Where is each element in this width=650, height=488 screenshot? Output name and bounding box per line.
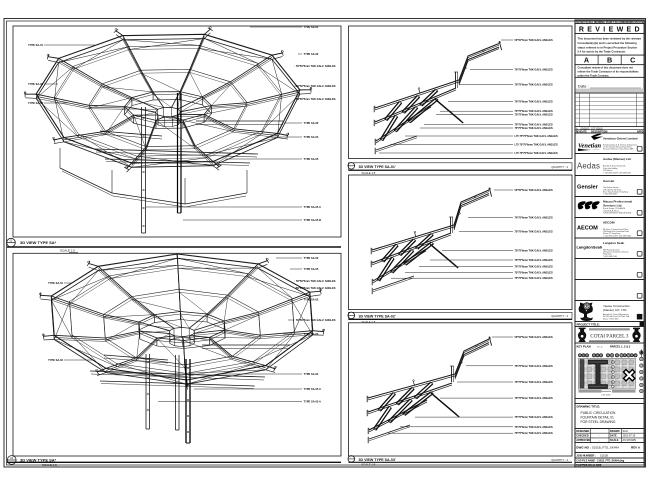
- svg-text:status referred to in Project: status referred to in Project Procedure …: [578, 45, 638, 49]
- svg-text:AS SHOWN: AS SHOWN: [623, 439, 637, 442]
- svg-text:QUANTITY : 4: QUANTITY : 4: [551, 165, 568, 169]
- svg-text:TYPE SA-02: TYPE SA-02: [304, 52, 319, 56]
- svg-text:TYPE SA-01: TYPE SA-01: [28, 43, 43, 47]
- svg-text:75*75*6mm THK GALV. ANGLES: 75*75*6mm THK GALV. ANGLES: [515, 84, 553, 87]
- svg-text:C: C: [630, 56, 635, 65]
- svg-text:SAO: SAO: [623, 430, 628, 433]
- svg-text:50*50*5mm THK GALV. ANGLES: 50*50*5mm THK GALV. ANGLES: [515, 189, 553, 192]
- svg-text:Aedas (Macau) Ltd.: Aedas (Macau) Ltd.: [603, 157, 632, 161]
- svg-text:TYPE SA-02: TYPE SA-02: [28, 82, 43, 86]
- svg-text:SCALE 1:5: SCALE 1:5: [60, 249, 75, 253]
- svg-text:TYPE SA-05 A: TYPE SA-05 A: [304, 205, 321, 209]
- svg-text:DRAWING TITLE:: DRAWING TITLE:: [577, 405, 601, 409]
- svg-text:TYPE SA-04: TYPE SA-04: [48, 358, 63, 362]
- svg-text:75*75*6mm THK GALV. ANGLES: 75*75*6mm THK GALV. ANGLES: [515, 432, 553, 435]
- svg-text:Aedas: Aedas: [577, 162, 600, 171]
- svg-text:75*75*6mm THK GALV. ANGLES: 75*75*6mm THK GALV. ANGLES: [515, 265, 553, 268]
- svg-text:TYPE SA-05: TYPE SA-05: [304, 267, 319, 271]
- svg-text:3D VIEW TYPE SA-02': 3D VIEW TYPE SA-02': [359, 314, 396, 318]
- svg-text:50*50*5mm THK GALV. ANGLES: 50*50*5mm THK GALV. ANGLES: [515, 336, 553, 339]
- svg-text:TYPE SA-04: TYPE SA-04: [304, 135, 319, 139]
- svg-text:SCALE 1:5: SCALE 1:5: [42, 463, 57, 467]
- svg-text:50*50*5mm THK GALV. ANGLES: 50*50*5mm THK GALV. ANGLES: [515, 39, 553, 42]
- svg-text:L75 75*75*6mm THK GALV. ANGLES: L75 75*75*6mm THK GALV. ANGLES: [515, 144, 558, 147]
- svg-text:JOB NUMBER :: JOB NUMBER :: [576, 454, 596, 458]
- svg-text:KEY PLAN: KEY PLAN: [577, 345, 591, 349]
- svg-text:DRAWN: DRAWN: [610, 430, 620, 433]
- svg-text:T +853 2833 1033 F +853 2833: T +853 2833 1033 F +853 2833 1000: [603, 172, 631, 174]
- svg-text:TYPE SA-02: TYPE SA-02: [304, 121, 319, 125]
- svg-text:TYPE SA-05 A: TYPE SA-05 A: [304, 400, 321, 404]
- svg-text:QUANTITY : 4: QUANTITY : 4: [551, 314, 568, 318]
- svg-text:75*75*6mm THK GALV. ANGLES: 75*75*6mm THK GALV. ANGLES: [515, 114, 553, 117]
- svg-text:Langdon Seah: Langdon Seah: [603, 241, 624, 245]
- svg-text:T (852) 2830 1500: T (852) 2830 1500: [603, 256, 617, 258]
- svg-text:TYPE SA-03: TYPE SA-03: [304, 332, 319, 336]
- svg-text:PUBLIC CIRCULATION: PUBLIC CIRCULATION: [581, 411, 617, 415]
- svg-text:75*75*6mm THK GALV. ANGLES: 75*75*6mm THK GALV. ANGLES: [515, 416, 553, 419]
- svg-text:TYPE SA-02: TYPE SA-02: [28, 101, 43, 105]
- svg-text:5151B: 5151B: [600, 454, 608, 458]
- svg-text:T +852 2893 1551 F +852 2891: T +852 2893 1551 F +852 2891 7834: [603, 235, 631, 237]
- svg-text:B: B: [607, 56, 612, 65]
- svg-text:Gensler: Gensler: [577, 185, 599, 191]
- svg-text:Consultant(s)(s) and is accord: Consultant(s)(s) and is accorded the fol…: [578, 41, 637, 45]
- svg-text:2015-07-15: 2015-07-15: [623, 435, 636, 438]
- svg-text:TYPE SA-02: TYPE SA-02: [304, 256, 319, 260]
- svg-text:75*75*6mm THK GALV. ANGLES: 75*75*6mm THK GALV. ANGLES: [515, 100, 553, 103]
- svg-text:APPROVED: APPROVED: [576, 439, 590, 442]
- svg-text:Consultant review of this docu: Consultant review of this document does …: [578, 66, 634, 70]
- svg-text:This document has been reviewe: This document has been reviewed by the r…: [578, 37, 642, 41]
- svg-text:3D VIEW TYPE SA*: 3D VIEW TYPE SA*: [20, 457, 57, 462]
- svg-text:FOUNTAIN DETAIL 01: FOUNTAIN DETAIL 01: [581, 415, 614, 419]
- svg-text:50*50*5mm THK GALV. ANGLES: 50*50*5mm THK GALV. ANGLES: [296, 64, 336, 68]
- svg-text:R E V I E W E D: R E V I E W E D: [579, 26, 640, 33]
- svg-text:L75 75*75*6mm THK GALV. ANGLES: L75 75*75*6mm THK GALV. ANGLES: [515, 152, 558, 155]
- svg-text:Services Ltd.: Services Ltd.: [603, 204, 622, 208]
- svg-text:DWG NO :: DWG NO :: [576, 446, 591, 450]
- svg-text:CHECKED: CHECKED: [576, 435, 589, 438]
- svg-text:75*75*6mm THK GALV. ANGLES: 75*75*6mm THK GALV. ANGLES: [515, 259, 553, 262]
- svg-text:CAD FILE NAME : 5151B_FTD_SK49: CAD FILE NAME : 5151B_FTD_SK494.dwg: [576, 460, 624, 463]
- svg-text:Venetian Orient Limited: Venetian Orient Limited: [603, 137, 638, 141]
- svg-text:3D VIEW TYPE SA-01': 3D VIEW TYPE SA-01': [359, 165, 396, 169]
- svg-text:TYPE SA-02: TYPE SA-02: [304, 298, 319, 302]
- svg-text:75*75*6mm THK GALV. ANGLES: 75*75*6mm THK GALV. ANGLES: [515, 249, 553, 252]
- svg-text:5151B_FTD_SK494: 5151B_FTD_SK494: [592, 446, 619, 450]
- svg-text:(Macau) CO. LTD.: (Macau) CO. LTD.: [603, 308, 627, 312]
- svg-text:75*75*6mm THK GALV. ANGLES: 75*75*6mm THK GALV. ANGLES: [515, 68, 553, 71]
- svg-text:L75 75*75*6mm THK GALV. ANGLES: L75 75*75*6mm THK GALV. ANGLES: [515, 135, 558, 138]
- svg-text:TYPE SA-05: TYPE SA-05: [304, 157, 319, 161]
- svg-text:TYPE SA-01: TYPE SA-01: [304, 25, 319, 29]
- svg-text:REV A: REV A: [631, 446, 641, 450]
- svg-text:50*50*5mm THK GALV. ANGLES: 50*50*5mm THK GALV. ANGLES: [296, 97, 336, 101]
- svg-text:3D VIEW TYPE SA-03': 3D VIEW TYPE SA-03': [359, 458, 396, 462]
- svg-text:75*75*6mm THK GALV. ANGLES: 75*75*6mm THK GALV. ANGLES: [515, 277, 553, 280]
- svg-text:AECOM: AECOM: [577, 226, 598, 232]
- svg-text:DESIGNED: DESIGNED: [576, 430, 589, 433]
- svg-text:TYPE SA-04: TYPE SA-04: [304, 372, 319, 376]
- svg-text:SCALE: SCALE: [610, 439, 619, 442]
- svg-text:under the Trade Contract.: under the Trade Contract.: [578, 74, 610, 78]
- svg-text:50*50*5mm THK GALV. ANGLES: 50*50*5mm THK GALV. ANGLES: [296, 279, 336, 283]
- svg-text:AECOM: AECOM: [603, 221, 615, 225]
- svg-text:TYPE SA-01: TYPE SA-01: [48, 281, 63, 285]
- svg-text:LangdonSeah: LangdonSeah: [577, 245, 603, 250]
- svg-text:Gensler: Gensler: [603, 179, 615, 183]
- svg-text:75*75*6mm THK GALV. ANGLES: 75*75*6mm THK GALV. ANGLES: [515, 365, 553, 368]
- svg-text:C OTAI P ARCEL 3: C OTAI P ARCEL 3: [590, 335, 629, 340]
- svg-text:A: A: [584, 56, 589, 65]
- svg-text:75*75*6mm THK GALV. ANGLES: 75*75*6mm THK GALV. ANGLES: [515, 381, 553, 384]
- svg-text:PROJECT TITLE:: PROJECT TITLE:: [577, 322, 600, 326]
- svg-text:FOR STEEL DRAWING: FOR STEEL DRAWING: [581, 420, 616, 424]
- svg-text:SCALE 1:5: SCALE 1:5: [362, 463, 376, 467]
- svg-text:75*75*6mm THK GALV. ANGLES: 75*75*6mm THK GALV. ANGLES: [515, 397, 553, 400]
- svg-text:TYPE SA-05 B: TYPE SA-05 B: [304, 218, 322, 222]
- svg-text:Macau T: 2875 3618: Macau T: 2875 3618: [603, 318, 618, 320]
- svg-text:PARCEL 1, 2 & 3: PARCEL 1, 2 & 3: [610, 345, 631, 349]
- svg-text:Executive Offices-L2, Taipa, M: Executive Offices-L2, Taipa, Macau SAR: [603, 148, 634, 151]
- svg-text:Date :: Date :: [578, 83, 589, 88]
- svg-text:3D VIEW TYPE SA*: 3D VIEW TYPE SA*: [20, 240, 57, 245]
- svg-text:relieve the Trade Contractor o: relieve the Trade Contractor of its resp…: [578, 70, 640, 74]
- svg-text:50*50*5mm THK GALV. ANGLES: 50*50*5mm THK GALV. ANGLES: [296, 286, 336, 290]
- svg-text:N.T.S.: N.T.S.: [597, 347, 603, 349]
- svg-text:0 40 100m: 0 40 100m: [602, 395, 611, 397]
- svg-text:QUANTITY : 4: QUANTITY : 4: [551, 458, 568, 462]
- svg-text:T (853) 2878 6625 F (853) 287: T (853) 2878 6625 F (853) 2878 6636: [603, 213, 631, 215]
- svg-text:75*75*6mm THK GALV. ANGLES: 75*75*6mm THK GALV. ANGLES: [515, 426, 553, 429]
- svg-text:Venetian: Venetian: [578, 143, 602, 150]
- svg-text:SCALE 1:5: SCALE 1:5: [362, 171, 376, 175]
- svg-text:50*50*5mm THK GALV. ANGLES: 50*50*5mm THK GALV. ANGLES: [296, 84, 336, 88]
- svg-text:TYPE SA-05 A: TYPE SA-05 A: [304, 387, 321, 391]
- svg-text:75*75*6mm THK GALV. ANGLES: 75*75*6mm THK GALV. ANGLES: [515, 216, 553, 219]
- svg-text:75*75*6mm THK GALV. ANGLES: 75*75*6mm THK GALV. ANGLES: [515, 231, 553, 234]
- svg-text:75*75*6mm THK GALV. ANGLES: 75*75*6mm THK GALV. ANGLES: [515, 272, 553, 275]
- svg-text:DATE: DATE: [610, 435, 617, 438]
- svg-text:75*75*6mm THK GALV. ANGLES: 75*75*6mm THK GALV. ANGLES: [515, 127, 553, 130]
- svg-text:50*50*5mm THK GALV. ANGLES: 50*50*5mm THK GALV. ANGLES: [296, 318, 336, 322]
- svg-text:T +852.2528.0618: T +852.2528.0618: [603, 194, 617, 196]
- svg-text:PLOTTED ON A1 SIZE: PLOTTED ON A1 SIZE: [576, 464, 601, 467]
- svg-text:5.4 for action by the Trade Co: 5.4 for action by the Trade Contractor.: [578, 50, 627, 54]
